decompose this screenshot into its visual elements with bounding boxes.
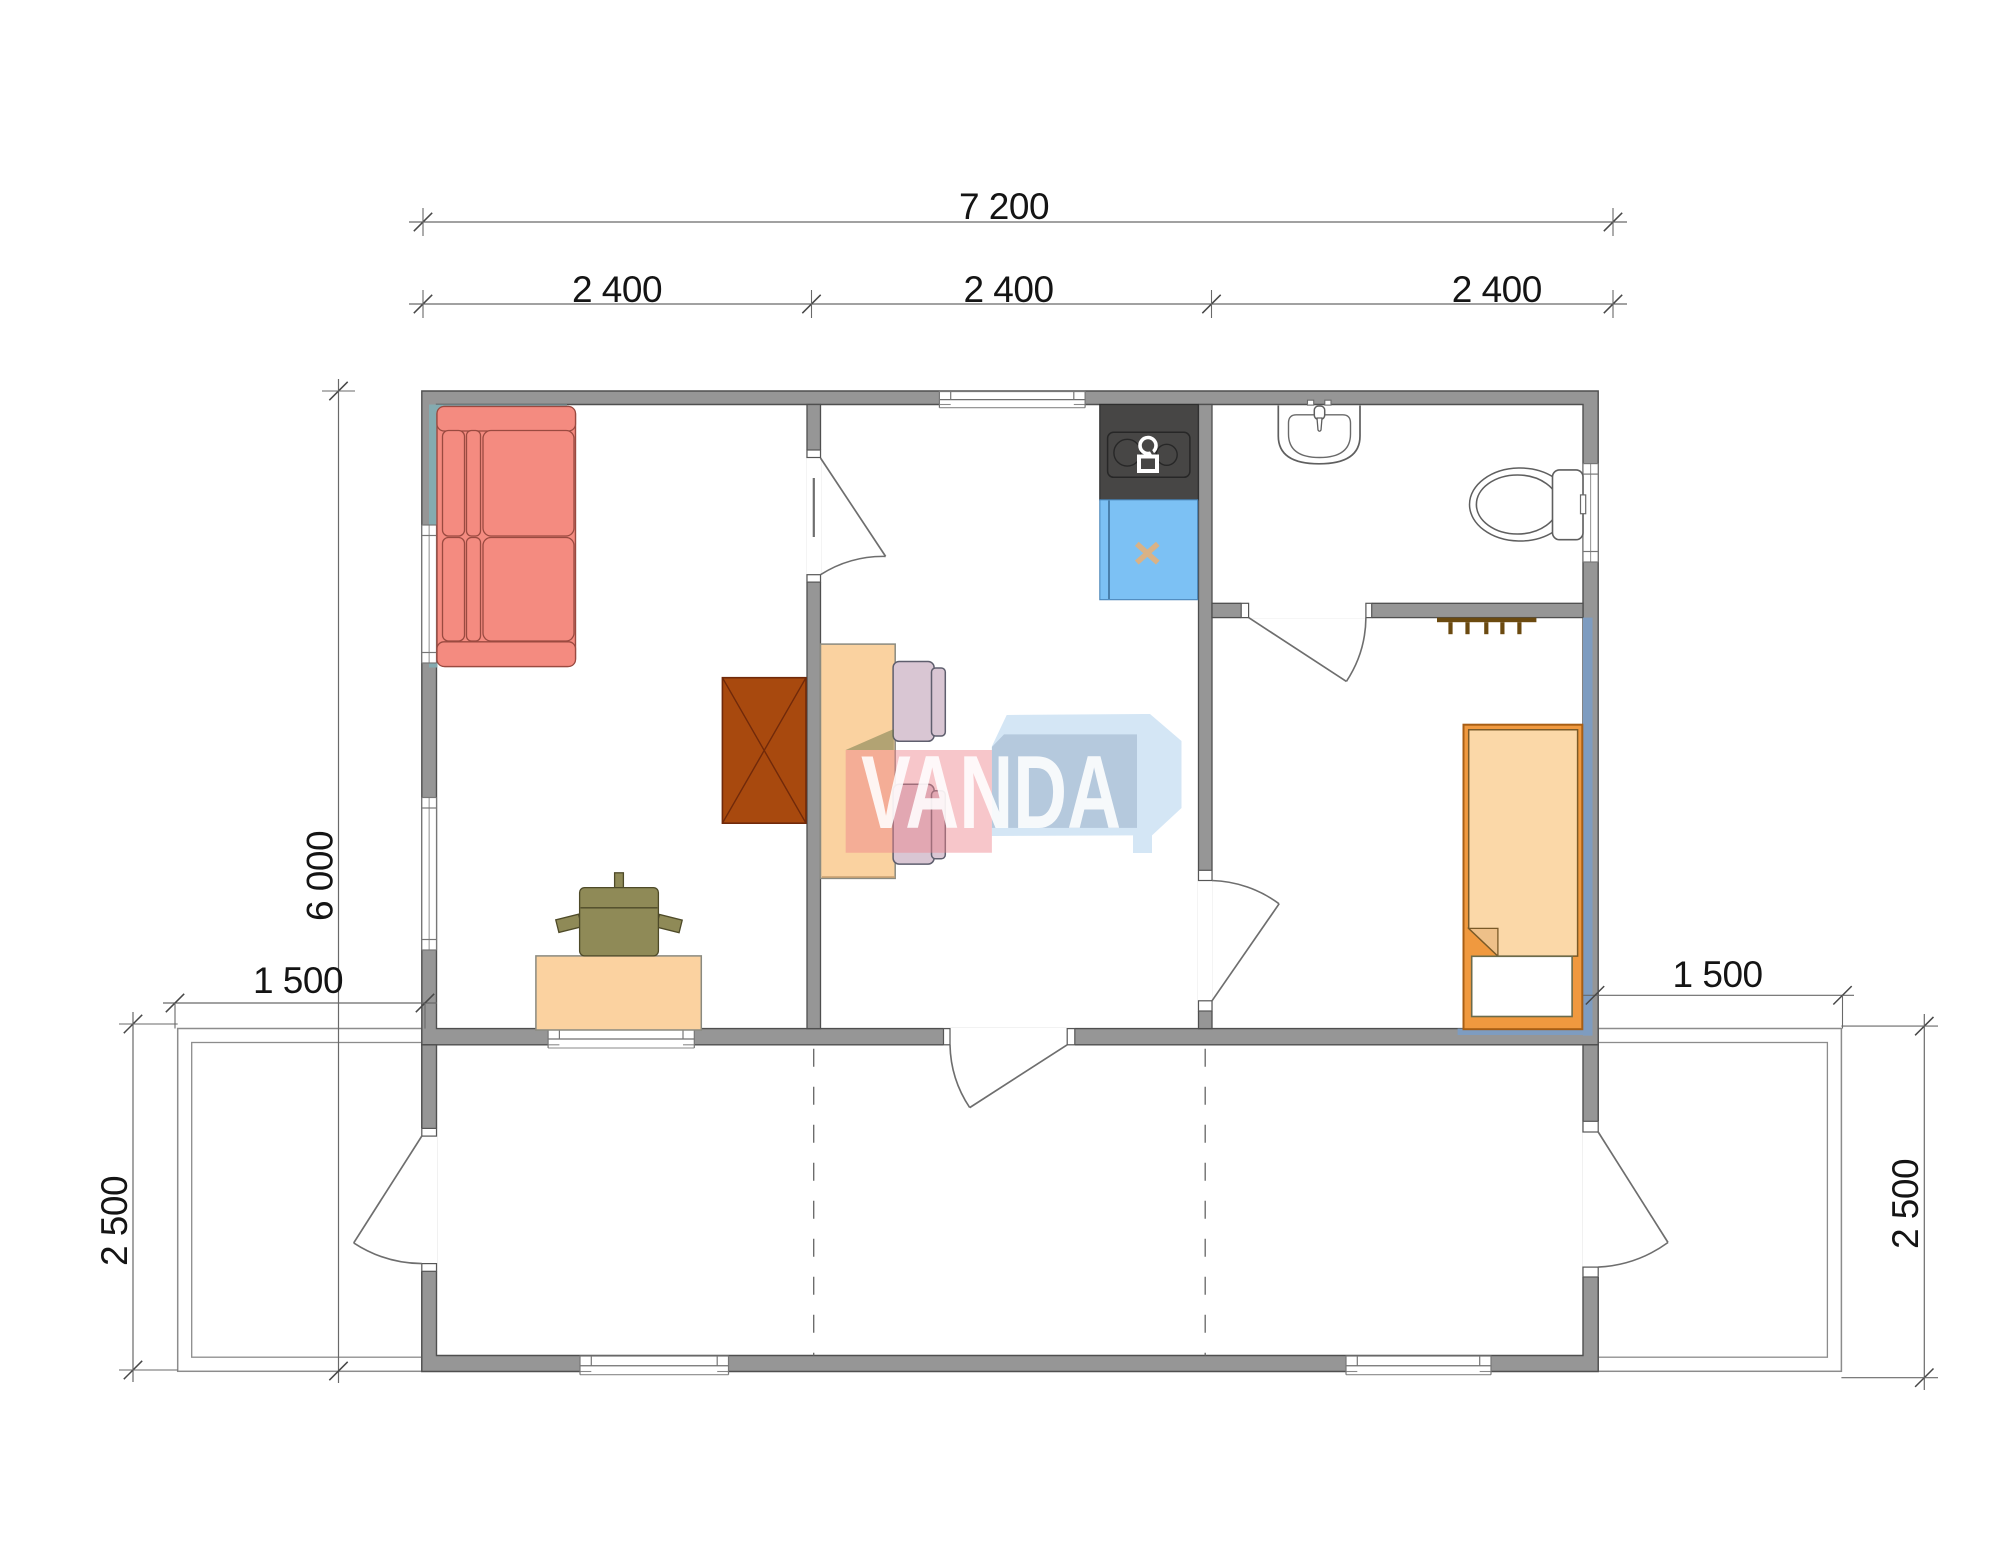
svg-text:2 500: 2 500 [1885, 1159, 1926, 1249]
svg-text:VANDA: VANDA [861, 735, 1121, 851]
svg-text:6 000: 6 000 [300, 831, 341, 921]
svg-text:2 400: 2 400 [963, 269, 1053, 310]
svg-text:7 200: 7 200 [959, 186, 1049, 227]
svg-text:2 500: 2 500 [94, 1176, 135, 1266]
svg-text:2 400: 2 400 [1452, 269, 1542, 310]
svg-text:1 500: 1 500 [253, 960, 343, 1001]
svg-text:1 500: 1 500 [1673, 954, 1763, 995]
svg-text:2 400: 2 400 [572, 269, 662, 310]
